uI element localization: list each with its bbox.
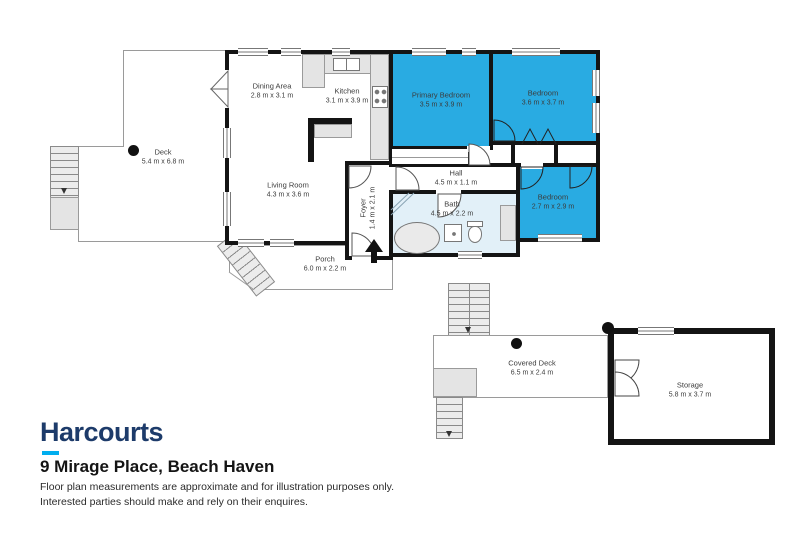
brand-underline — [42, 451, 59, 455]
room-label-primary-bedroom: Primary Bedroom 3.5 m x 3.9 m — [412, 91, 470, 110]
bath-cabinet — [500, 205, 516, 241]
deck-stairs — [50, 146, 79, 198]
room-label-porch: Porch 6.0 m x 2.2 m — [304, 255, 346, 274]
room-label-foyer: Foyer 1.4 m x 2.1 m — [359, 187, 378, 229]
window — [592, 103, 600, 133]
deck-stair-landing — [50, 197, 79, 230]
toilet-tank — [467, 221, 483, 227]
door-gap-bedroom3 — [521, 163, 543, 169]
room-label-dining: Dining Area 2.8 m x 3.1 m — [251, 82, 293, 101]
window — [223, 192, 231, 226]
room-label-bedroom2: Bedroom 3.6 m x 3.7 m — [522, 89, 564, 108]
room-label-hall: Hall 4.5 m x 1.1 m — [435, 169, 477, 188]
window — [462, 48, 476, 56]
deck-post-dot — [128, 145, 139, 156]
door-gap-deck — [225, 70, 233, 108]
wardrobe-right — [554, 141, 600, 167]
bathtub — [394, 222, 440, 254]
bath-vanity — [444, 224, 462, 242]
kitchen-stove — [372, 86, 388, 108]
door-gap-entry — [352, 255, 375, 261]
room-label-bath: Bath 4.5 m x 2.2 m — [431, 200, 473, 219]
room-label-bedroom3: Bedroom 2.7 m x 2.9 m — [532, 193, 574, 212]
window — [332, 48, 350, 56]
floorplan-canvas: Deck 5.4 m x 6.8 m Dining Area 2.8 m x 3… — [0, 0, 800, 533]
primary-wardrobe — [389, 146, 471, 167]
lower-stairs — [436, 397, 463, 439]
window — [270, 239, 294, 247]
room-label-deck: Deck 5.4 m x 6.8 m — [142, 148, 184, 167]
door-gap-foyer-hall — [389, 167, 397, 190]
window — [238, 239, 264, 247]
window — [412, 48, 446, 56]
brand-logo: Harcourts — [40, 417, 163, 448]
room-label-kitchen: Kitchen 3.1 m x 3.9 m — [326, 87, 368, 106]
deck-area — [123, 50, 229, 242]
disclaimer-line-1: Floor plan measurements are approximate … — [40, 481, 394, 493]
window — [281, 48, 301, 56]
window — [458, 251, 482, 259]
room-label-storage: Storage 5.8 m x 3.7 m — [669, 381, 711, 400]
room-label-covered-deck: Covered Deck 6.5 m x 2.4 m — [508, 359, 556, 378]
window — [238, 48, 268, 56]
window — [638, 327, 674, 335]
kitchen-counter-left — [302, 54, 325, 88]
door-gap-primary — [467, 146, 490, 152]
window — [538, 234, 582, 242]
window — [512, 48, 560, 56]
covered-deck-landing — [433, 368, 477, 397]
property-address: 9 Mirage Place, Beach Haven — [40, 457, 274, 477]
upper-stairs — [448, 283, 490, 336]
storage-post-dot — [602, 322, 614, 334]
disclaimer-line-2: Interested parties should make and rely … — [40, 496, 308, 508]
window — [223, 128, 231, 158]
kitchen-sink — [333, 58, 360, 71]
kitchen-peninsula — [314, 124, 352, 138]
window — [592, 70, 600, 96]
door-gap-bath — [436, 189, 461, 195]
room-label-living: Living Room 4.3 m x 3.6 m — [267, 181, 309, 200]
covered-deck-post-dot — [511, 338, 522, 349]
toilet — [468, 226, 482, 243]
deck-area-lower — [78, 146, 124, 242]
